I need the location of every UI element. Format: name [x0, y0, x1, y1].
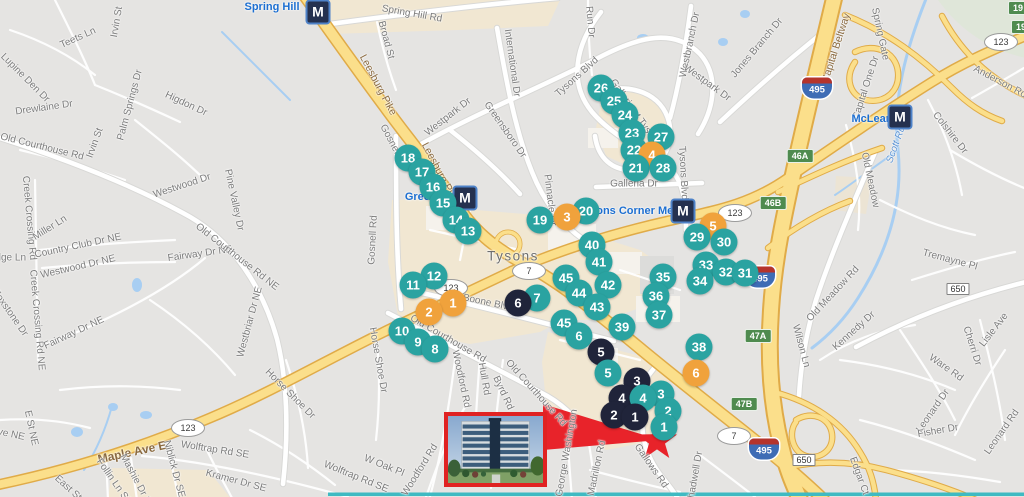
map-marker-orange-1[interactable]: 1	[440, 290, 467, 317]
map-marker-teal-38[interactable]: 38	[686, 334, 713, 361]
metro-station-marker-tysons-corner-metro[interactable]: M	[671, 199, 696, 224]
map-marker-teal-39[interactable]: 39	[609, 314, 636, 341]
map-marker-teal-34[interactable]: 34	[687, 268, 714, 295]
map-canvas[interactable]: Spring Hill RdBroad StLeesburg PikeLeesb…	[0, 0, 1024, 497]
metro-station-marker-spring-hill[interactable]: M	[306, 0, 331, 25]
map-marker-teal-21[interactable]: 21	[623, 155, 650, 182]
map-marker-orange-6[interactable]: 6	[683, 360, 710, 387]
map-marker-teal-8[interactable]: 8	[422, 336, 449, 363]
map-marker-orange-2[interactable]: 2	[416, 299, 443, 326]
map-marker-teal-37[interactable]: 37	[646, 302, 673, 329]
map-edge-line	[328, 493, 1024, 497]
map-marker-teal-28[interactable]: 28	[650, 155, 677, 182]
map-marker-teal-11[interactable]: 11	[400, 272, 427, 299]
map-marker-teal-43[interactable]: 43	[584, 294, 611, 321]
metro-station-marker-mclean[interactable]: M	[888, 105, 913, 130]
map-marker-teal-13[interactable]: 13	[455, 218, 482, 245]
building-photo-inset	[444, 412, 547, 487]
map-marker-teal-19[interactable]: 19	[527, 207, 554, 234]
map-marker-black-6[interactable]: 6	[505, 290, 532, 317]
map-marker-orange-3[interactable]: 3	[554, 204, 581, 231]
map-marker-teal-5[interactable]: 5	[595, 360, 622, 387]
map-marker-black-1[interactable]: 1	[622, 404, 649, 431]
map-marker-teal-29[interactable]: 29	[684, 224, 711, 251]
map-marker-teal-31[interactable]: 31	[732, 260, 759, 287]
map-marker-teal-1[interactable]: 1	[651, 414, 678, 441]
map-marker-teal-30[interactable]: 30	[711, 229, 738, 256]
building-photo	[448, 416, 543, 483]
